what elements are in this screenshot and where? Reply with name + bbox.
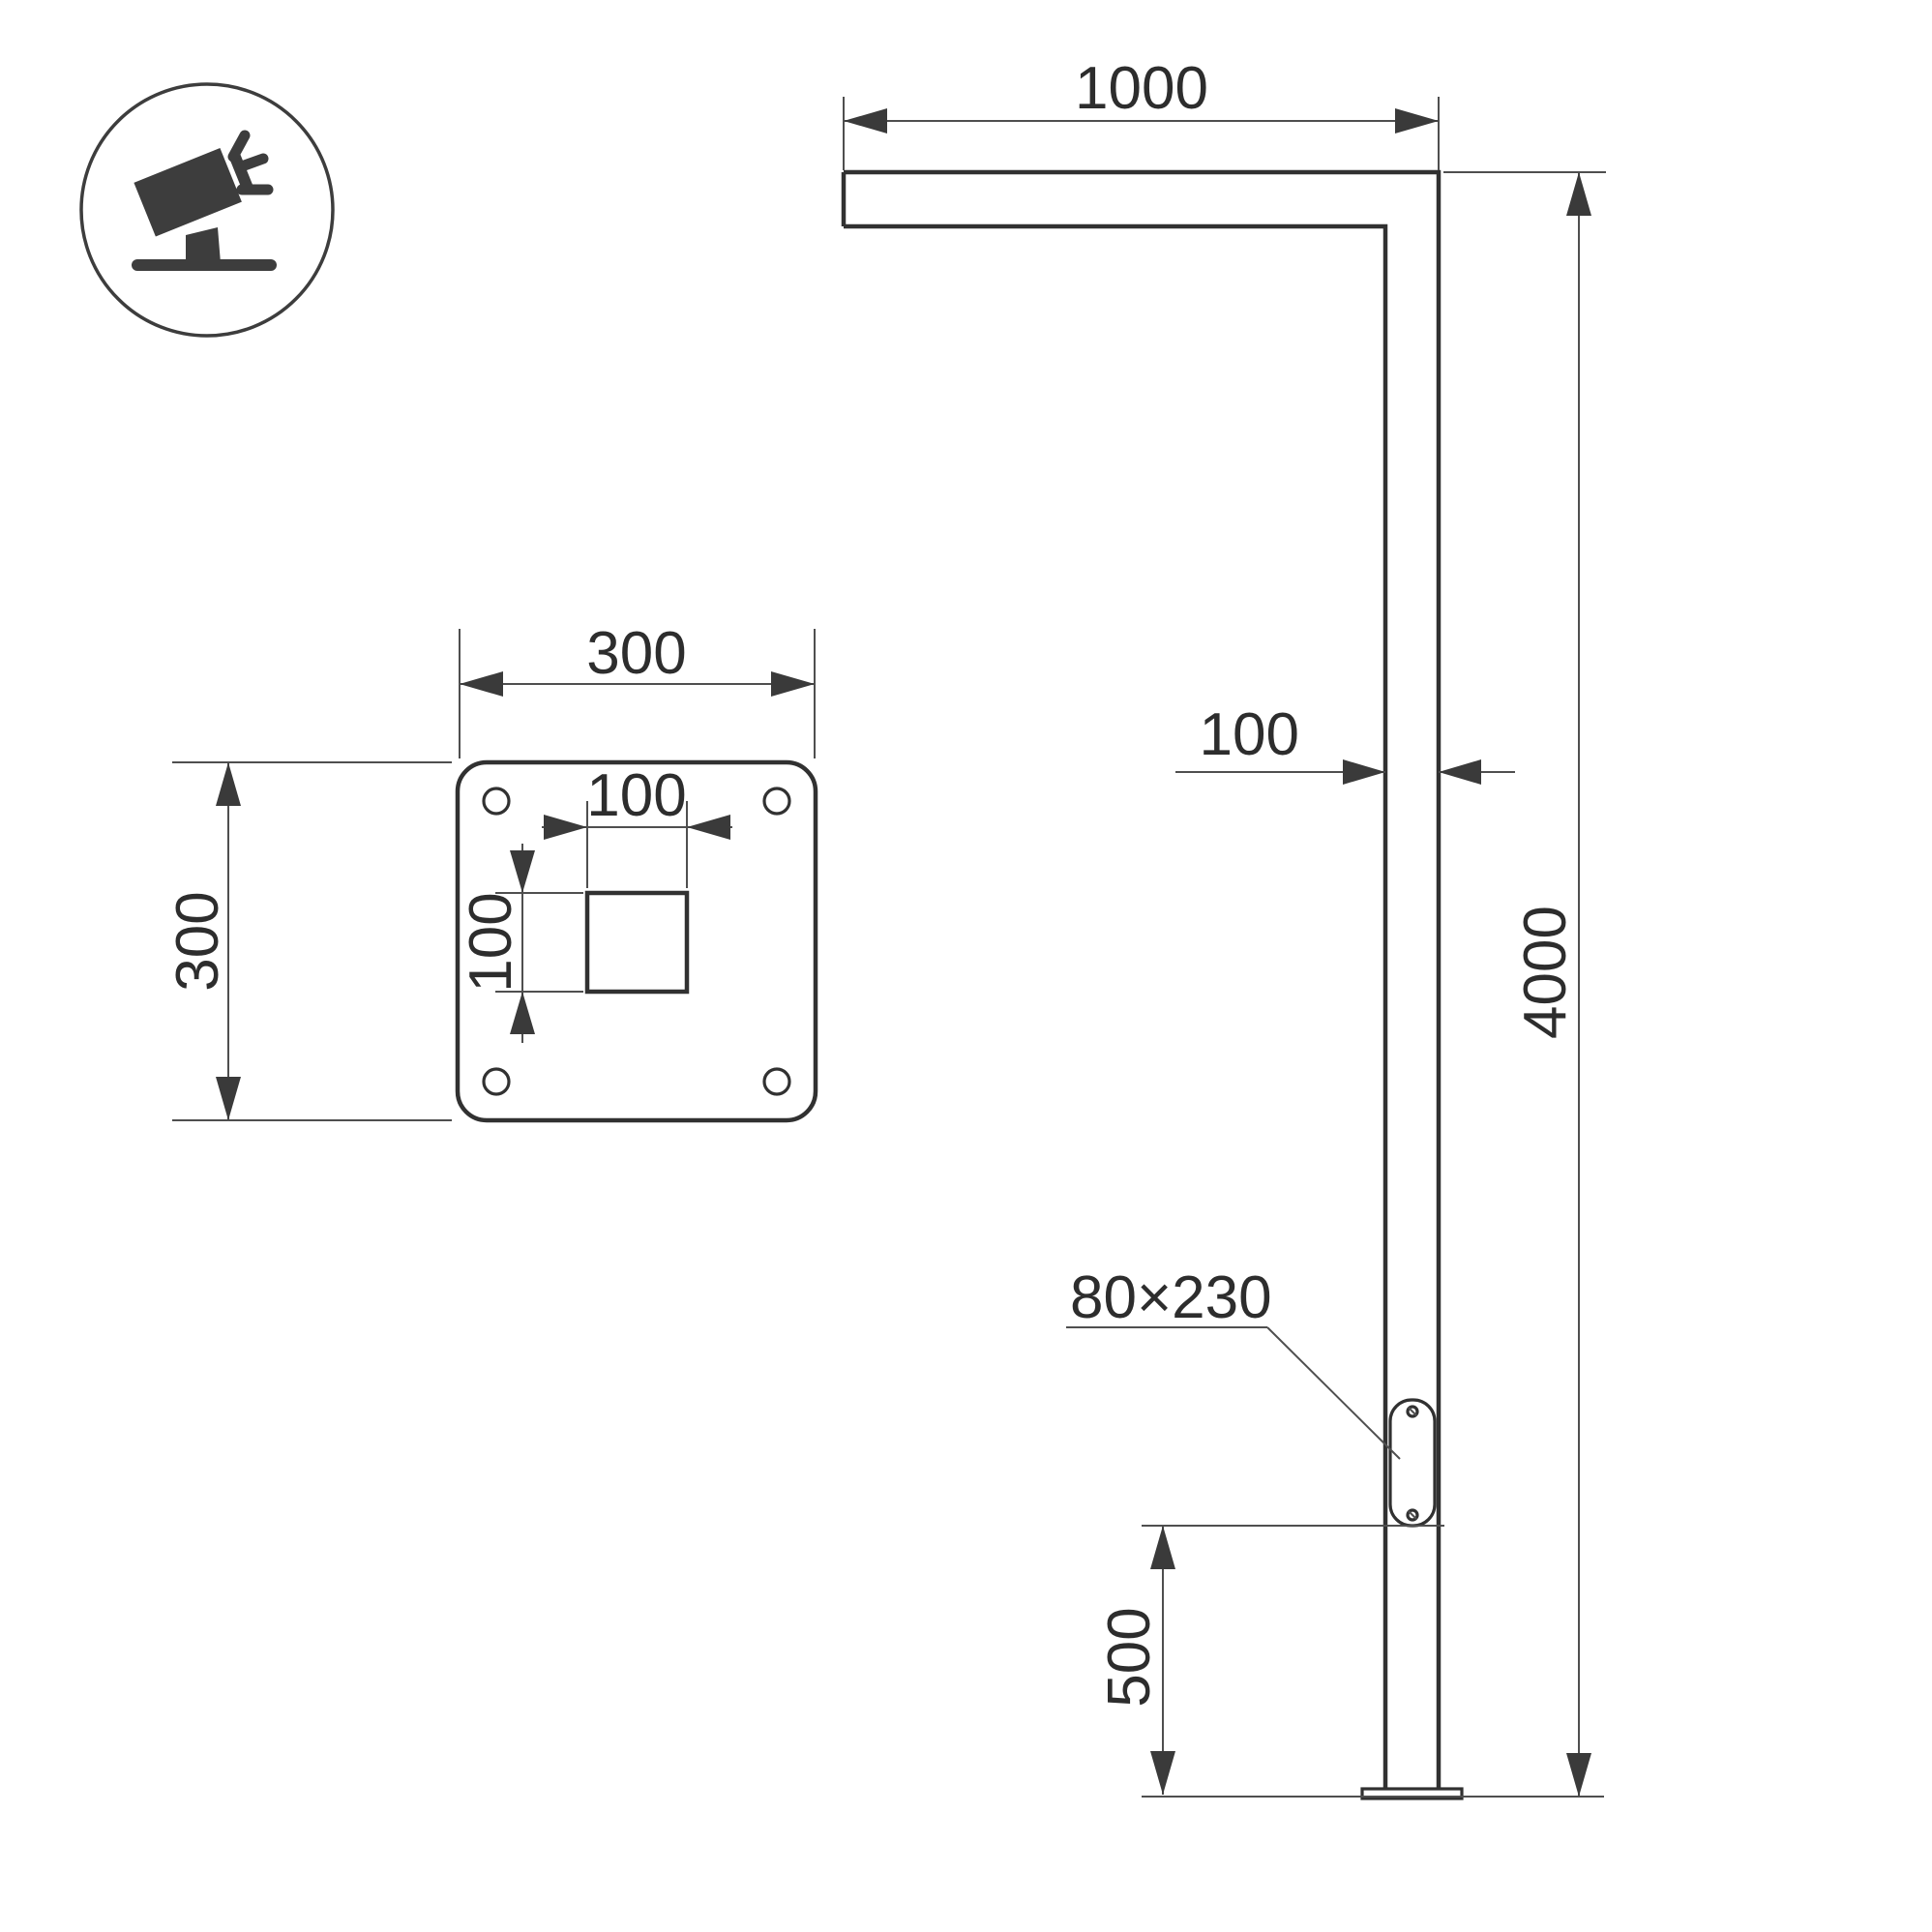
pole-inner-contour (844, 226, 1385, 1789)
floodlight-stand (186, 227, 221, 263)
dim-arrow-up (1566, 172, 1591, 216)
dim-arm-length: 1000 (844, 55, 1439, 170)
dim-socket-width: 100 (542, 762, 732, 888)
door-size-label: 80×230 (1070, 1264, 1272, 1331)
bolt-hole-bottom-right (764, 1069, 789, 1094)
dim-pole-height: 4000 (1142, 172, 1606, 1797)
pole-socket-square (587, 893, 687, 992)
dim-label-arm-length: 1000 (1075, 55, 1208, 122)
door-size-callout: 80×230 (1066, 1264, 1400, 1459)
dim-label-socket-height: 100 (458, 892, 524, 992)
dim-arrow-right (1439, 759, 1481, 785)
dim-arrow-down-tip (510, 850, 535, 893)
pole-outer-contour (844, 172, 1439, 1789)
dim-arrow-down (216, 1077, 241, 1120)
dim-label-plate-width: 300 (586, 620, 686, 687)
bolt-hole-bottom-left (484, 1069, 509, 1094)
dim-label-pole-width: 100 (1200, 701, 1299, 768)
access-door (1390, 1400, 1435, 1526)
dim-arrow-right (771, 671, 815, 697)
dim-arrow-up (1150, 1526, 1175, 1569)
dim-arrow-down (1566, 1753, 1591, 1797)
dim-arrow-left (844, 108, 887, 134)
floodlight-icon (81, 84, 333, 336)
dim-door-offset: 500 (1096, 1526, 1444, 1795)
dim-label-pole-height: 4000 (1512, 906, 1579, 1039)
light-ray-top (233, 135, 245, 157)
bolt-hole-top-right (764, 788, 789, 814)
leader-line (1267, 1327, 1400, 1459)
dim-socket-height: 100 (458, 844, 583, 1043)
dim-label-plate-height: 300 (164, 891, 231, 991)
floodlight-base-bar (132, 259, 277, 271)
dim-arrow-left (460, 671, 503, 697)
dim-arrow-right (1395, 108, 1439, 134)
dim-label-socket-width: 100 (586, 762, 686, 829)
dim-arrow-left (544, 815, 587, 840)
bolt-hole-top-left (484, 788, 509, 814)
dim-label-door-offset: 500 (1096, 1607, 1163, 1707)
dim-arrow-up (216, 762, 241, 806)
dim-plate-height: 300 (164, 762, 452, 1120)
pole-elevation-view (844, 172, 1462, 1798)
floodlight-body (134, 148, 241, 237)
dim-arrow-right (687, 815, 730, 840)
technical-drawing-canvas: 1000 100 4000 500 80×230 (0, 0, 1932, 1932)
pole-drawing-svg: 1000 100 4000 500 80×230 (0, 0, 1932, 1932)
dim-plate-width: 300 (460, 620, 815, 758)
dim-arrow-up-tip (510, 992, 535, 1034)
dim-arrow-down (1150, 1751, 1175, 1795)
dim-pole-width: 100 (1175, 701, 1515, 785)
dim-arrow-left (1343, 759, 1385, 785)
